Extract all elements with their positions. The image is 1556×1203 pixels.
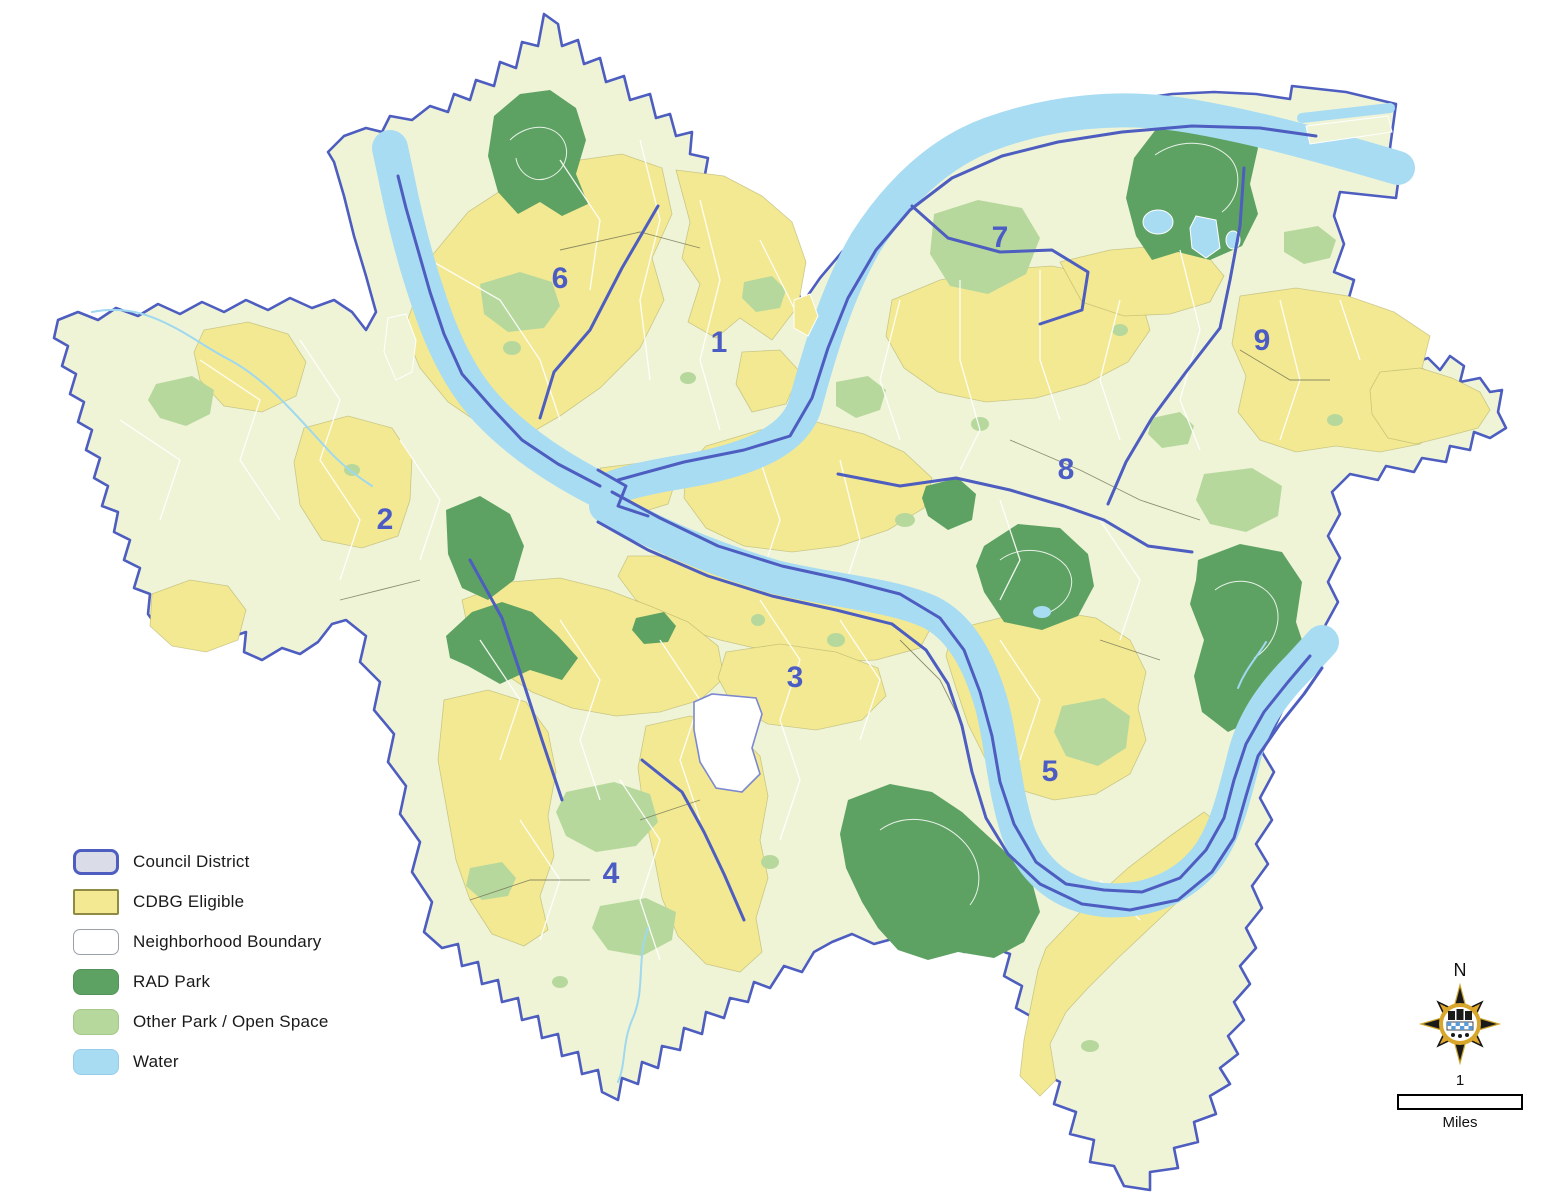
legend-item-label: Neighborhood Boundary: [133, 932, 322, 952]
map-page: 1 2 3 4 5 6 7 8 9 Council District CDBG …: [0, 0, 1556, 1203]
other-park-area: [344, 464, 360, 476]
other-park-swatch: [73, 1009, 119, 1035]
compass-star: [1416, 980, 1504, 1068]
legend-item-label: Council District: [133, 852, 250, 872]
legend-item-label: Other Park / Open Space: [133, 1012, 328, 1032]
legend-item-label: RAD Park: [133, 972, 210, 992]
other-park-area: [503, 341, 521, 355]
legend-item-other-park: Other Park / Open Space: [73, 1009, 328, 1035]
rad-park-swatch: [73, 969, 119, 995]
district-label-9: 9: [1254, 324, 1271, 357]
legend: Council District CDBG Eligible Neighborh…: [73, 849, 328, 1089]
legend-item-rad-park: RAD Park: [73, 969, 328, 995]
legend-item-neighborhood-boundary: Neighborhood Boundary: [73, 929, 328, 955]
cdbg-area: [676, 170, 806, 340]
district-label-4: 4: [603, 857, 620, 890]
scale-bar-rect: [1397, 1094, 1523, 1110]
other-park-area: [680, 372, 696, 384]
neighborhood-boundary-swatch: [73, 929, 119, 955]
compass-rose: N: [1412, 962, 1508, 1073]
legend-item-council-district: Council District: [73, 849, 328, 875]
other-park-area: [1081, 1040, 1099, 1052]
district-label-7: 7: [992, 221, 1009, 254]
cdbg-eligible-swatch: [73, 889, 119, 915]
other-park-area: [827, 633, 845, 647]
legend-item-label: CDBG Eligible: [133, 892, 244, 912]
other-park-area: [1112, 324, 1128, 336]
scale-distance-label: 1: [1391, 1072, 1529, 1092]
north-label: N: [1412, 962, 1508, 978]
other-park-area: [1327, 414, 1343, 426]
other-park-area: [552, 976, 568, 988]
legend-item-label: Water: [133, 1052, 179, 1072]
district-label-1: 1: [711, 326, 728, 359]
reservoir-lake: [1143, 210, 1173, 234]
district-label-5: 5: [1042, 755, 1059, 788]
cdbg-area: [150, 580, 246, 652]
water-swatch: [73, 1049, 119, 1075]
district-label-3: 3: [787, 661, 804, 694]
other-park-area: [895, 513, 915, 527]
council-district-swatch: [73, 849, 119, 875]
other-park-area: [761, 855, 779, 869]
other-park-area: [751, 614, 765, 626]
compass-star-icon: [1416, 980, 1504, 1068]
district-label-2: 2: [377, 503, 394, 536]
rad-park-area: [488, 90, 588, 216]
legend-item-cdbg-eligible: CDBG Eligible: [73, 889, 328, 915]
district-label-8: 8: [1058, 453, 1075, 486]
district-label-6: 6: [552, 262, 569, 295]
scale-bar: 1 Miles: [1391, 1072, 1529, 1131]
park-lake: [1033, 606, 1051, 618]
scale-unit-label: Miles: [1391, 1114, 1529, 1131]
legend-item-water: Water: [73, 1049, 328, 1075]
